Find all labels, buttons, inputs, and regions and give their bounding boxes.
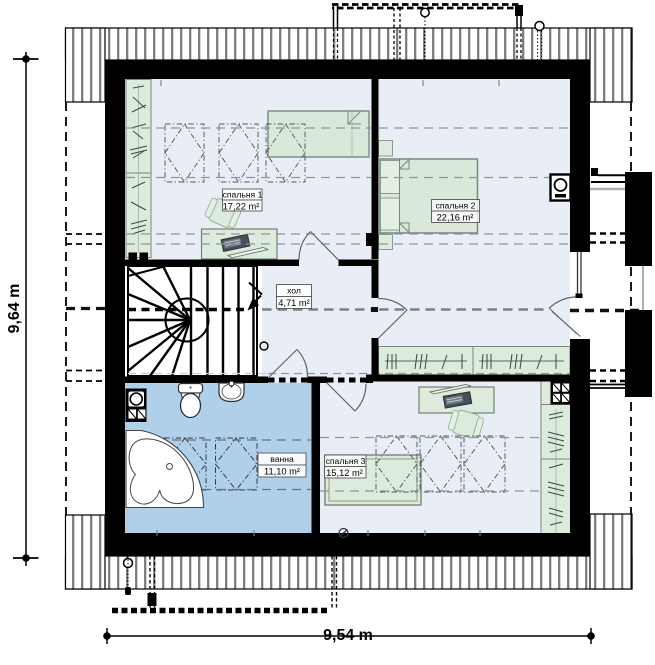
svg-text:спальня 3: спальня 3 bbox=[326, 456, 366, 466]
svg-text:спальня 1: спальня 1 bbox=[223, 190, 263, 200]
svg-text:9,54 m: 9,54 m bbox=[323, 627, 373, 644]
svg-text:хол: хол bbox=[287, 286, 301, 296]
svg-text:ванна: ванна bbox=[270, 454, 294, 464]
svg-text:11,10 m²: 11,10 m² bbox=[264, 467, 300, 477]
svg-text:22,16 m²: 22,16 m² bbox=[437, 213, 474, 223]
svg-text:9,64 m: 9,64 m bbox=[6, 284, 23, 334]
svg-text:17,22 m²: 17,22 m² bbox=[223, 201, 260, 211]
svg-text:15,12 m²: 15,12 m² bbox=[326, 468, 363, 478]
svg-text:спальня 2: спальня 2 bbox=[436, 201, 476, 211]
svg-text:4,71 m²: 4,71 m² bbox=[278, 298, 310, 308]
